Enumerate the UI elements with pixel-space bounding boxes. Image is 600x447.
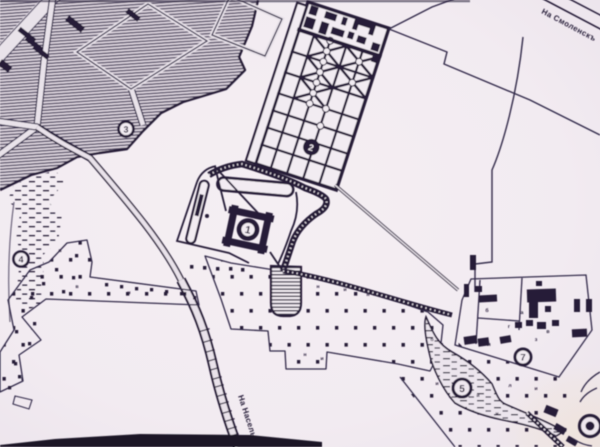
svg-text:н: н: [303, 352, 306, 358]
svg-text:в: в: [75, 284, 78, 290]
svg-text:з: з: [535, 337, 538, 343]
svg-text:и: и: [343, 287, 346, 293]
svg-text:н: н: [366, 292, 369, 298]
svg-text:б: б: [485, 308, 488, 314]
svg-text:н: н: [127, 290, 130, 296]
svg-text:и: и: [476, 393, 479, 399]
svg-text:н: н: [495, 411, 498, 417]
svg-text:в: в: [58, 248, 61, 254]
svg-text:4: 4: [18, 254, 23, 264]
svg-text:и: и: [320, 356, 323, 362]
svg-text:в: в: [546, 329, 549, 335]
svg-text:и: и: [534, 386, 537, 392]
svg-text:л: л: [508, 383, 511, 389]
svg-text:7: 7: [520, 353, 525, 364]
svg-text:3: 3: [123, 124, 128, 134]
svg-text:б: б: [430, 337, 433, 343]
svg-text:а: а: [521, 310, 524, 316]
svg-text:и: и: [435, 381, 438, 387]
svg-text:л: л: [487, 342, 490, 348]
svg-text:н: н: [316, 284, 319, 290]
svg-text:5: 5: [459, 384, 465, 395]
